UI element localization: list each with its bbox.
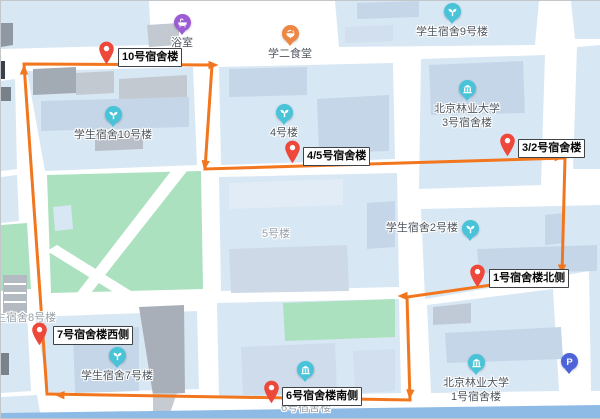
route-waypoint-pin[interactable] xyxy=(98,41,115,70)
campus-icon xyxy=(297,361,314,378)
route-direction-arrow xyxy=(20,65,28,75)
waypoint-label[interactable]: 6号宿舍楼南侧 xyxy=(282,387,362,406)
poi-label-line: 北京林业大学 xyxy=(434,103,500,117)
route-waypoint-pin[interactable] xyxy=(284,140,301,169)
waypoint-label[interactable]: 4/5号宿舍楼 xyxy=(303,147,370,166)
poi-label-building-4: 4号楼 xyxy=(270,127,298,141)
poi-label-line: 学生宿舍10号楼 xyxy=(74,129,152,143)
poi-label-bfu-dorm-1: 北京林业大学1号宿舍楼 xyxy=(443,377,509,404)
poi-pointer xyxy=(463,96,471,101)
campus-icon xyxy=(468,354,485,371)
waypoint-label[interactable]: 3/2号宿舍楼 xyxy=(518,139,585,158)
campus-icon xyxy=(459,80,476,97)
route-direction-arrow xyxy=(54,391,64,400)
building-label: 生宿舍8号楼 xyxy=(0,312,56,326)
poi-pointer xyxy=(286,41,294,46)
poi-pointer xyxy=(113,363,121,368)
poi-label-line: 3号宿舍楼 xyxy=(434,117,500,131)
poi-label-dorm-10: 学生宿舍10号楼 xyxy=(74,129,152,143)
route-waypoint-pin[interactable] xyxy=(469,264,486,293)
map-pin-icon xyxy=(284,140,301,164)
route-direction-arrow xyxy=(398,292,408,300)
poi-dorm-7[interactable] xyxy=(108,347,126,368)
poi-label-line: 学生宿舍2号楼 xyxy=(386,222,458,236)
map-pin-icon xyxy=(98,41,115,65)
waypoint-label[interactable]: 7号宿舍楼西侧 xyxy=(53,326,133,345)
sprout-icon xyxy=(444,3,461,20)
route-waypoint-pin[interactable] xyxy=(31,322,48,351)
waypoint-label[interactable]: 1号宿舍楼北侧 xyxy=(489,269,569,288)
poi-building-6[interactable] xyxy=(296,361,314,382)
poi-building-4[interactable] xyxy=(275,104,293,125)
poi-pointer xyxy=(178,30,186,35)
poi-pointer xyxy=(109,122,117,127)
poi-pointer xyxy=(301,377,309,382)
sprout-icon xyxy=(276,104,293,121)
parking-icon: P xyxy=(561,353,578,370)
poi-pointer xyxy=(565,369,573,374)
poi-bfu-dorm-1[interactable] xyxy=(467,354,485,375)
map-pin-icon xyxy=(499,133,516,157)
poi-label-dorm-2: 学生宿舍2号楼 xyxy=(386,222,458,236)
poi-label-line: 4号楼 xyxy=(270,127,298,141)
poi-parking[interactable]: P xyxy=(560,353,578,374)
poi-label-dorm-9: 学生宿舍9号楼 xyxy=(416,26,488,40)
poi-label-canteen-2: 学二食堂 xyxy=(268,48,312,62)
poi-canteen-2[interactable] xyxy=(281,25,299,46)
bath-icon xyxy=(174,14,191,31)
poi-pointer xyxy=(280,120,288,125)
poi-label-bfu-dorm-3: 北京林业大学3号宿舍楼 xyxy=(434,103,500,130)
route-waypoint-pin[interactable] xyxy=(263,380,280,409)
poi-dorm-9[interactable] xyxy=(443,3,461,24)
poi-label-line: 学二食堂 xyxy=(268,48,312,62)
poi-label-line: 学生宿舍7号楼 xyxy=(81,370,153,384)
map-canvas[interactable]: 浴室学二食堂学生宿舍9号楼北京林业大学3号宿舍楼学生宿舍10号楼4号楼学生宿舍2… xyxy=(0,0,600,419)
map-pin-icon xyxy=(31,322,48,346)
poi-label-line: 1号宿舍楼 xyxy=(443,391,509,405)
food-icon xyxy=(282,25,299,42)
route-overlay xyxy=(1,1,600,418)
route-waypoint-pin[interactable] xyxy=(499,133,516,162)
building-label: 5号楼 xyxy=(262,228,290,242)
sprout-icon xyxy=(105,106,122,123)
poi-label-line: 北京林业大学 xyxy=(443,377,509,391)
map-pin-icon xyxy=(469,264,486,288)
map-pin-icon xyxy=(263,380,280,404)
poi-pointer xyxy=(466,236,474,241)
svg-text:P: P xyxy=(566,357,572,367)
waypoint-label[interactable]: 10号宿舍楼 xyxy=(118,48,182,67)
poi-bathhouse[interactable] xyxy=(173,14,191,35)
poi-pointer xyxy=(448,19,456,24)
route-direction-arrow xyxy=(405,389,414,400)
sprout-icon xyxy=(462,220,479,237)
poi-bfu-dorm-3[interactable] xyxy=(458,80,476,101)
poi-pointer xyxy=(472,370,480,375)
poi-label-line: 学生宿舍9号楼 xyxy=(416,26,488,40)
sprout-icon xyxy=(109,347,126,364)
poi-label-dorm-7: 学生宿舍7号楼 xyxy=(81,370,153,384)
poi-dorm-10[interactable] xyxy=(104,106,122,127)
poi-dorm-2[interactable] xyxy=(461,220,479,241)
route-direction-arrow xyxy=(209,61,219,69)
